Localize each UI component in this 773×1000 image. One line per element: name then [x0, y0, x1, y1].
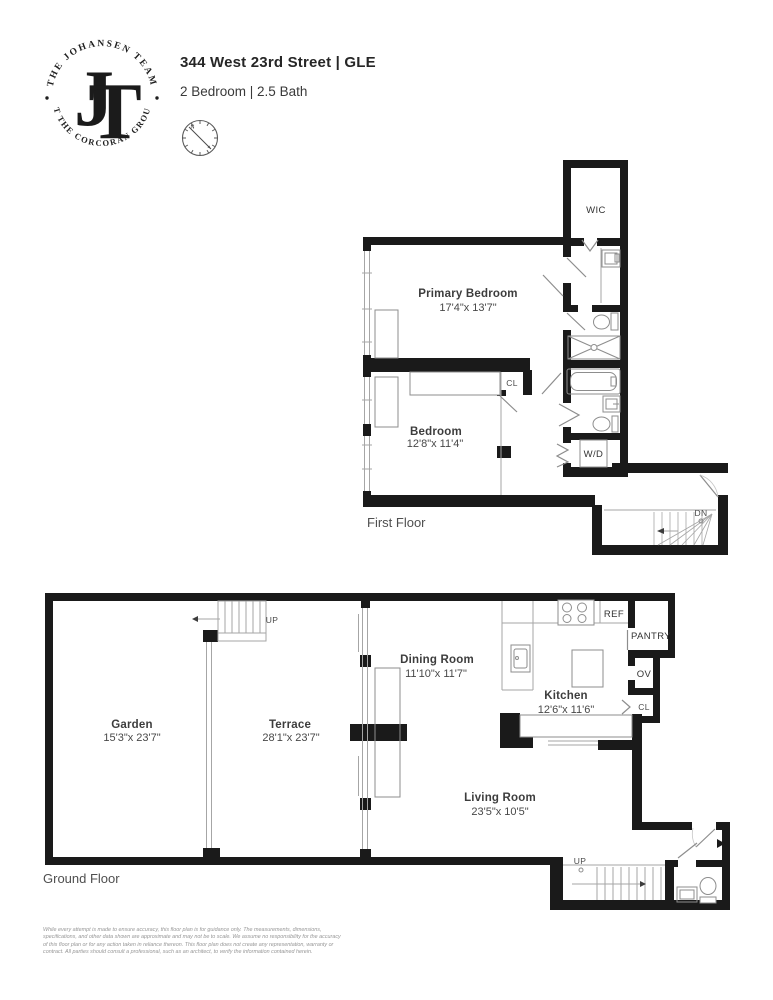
label-kitchen-closet: CL [638, 702, 649, 712]
first-floor-walls [363, 160, 728, 555]
label-dining-room-dims: 11'10"x 11'7" [405, 668, 467, 680]
label-stairs-dn: DN [695, 508, 708, 518]
label-up-living: UP [574, 856, 586, 866]
label-washer-dryer: W/D [584, 449, 604, 460]
disclaimer: While every attempt is made to ensure ac… [43, 927, 341, 957]
label-terrace-dims: 28'1"x 23'7" [262, 732, 319, 744]
label-bedroom-dims: 12'8"x 11'4" [407, 438, 464, 450]
label-oven: OV [637, 669, 652, 680]
logo-right-dot [155, 96, 158, 99]
label-ref: REF [604, 609, 624, 620]
label-living-room-name: Living Room [464, 792, 536, 804]
page-subtitle: 2 Bedroom | 2.5 Bath [180, 84, 307, 99]
company-logo: THE JOHANSEN TEAM AT THE CORCORAN GROUP … [27, 21, 177, 171]
kitchen-fixtures [375, 600, 632, 797]
ground-floor-plan: UP Garden 15'3"x 23'7" Terrace 28'1"x 23… [40, 586, 735, 916]
label-up-garden: UP [266, 615, 278, 625]
label-garden-name: Garden [111, 719, 152, 731]
compass-icon: N [178, 116, 222, 160]
logo-monogram-t: T [88, 68, 141, 156]
label-bedroom-name: Bedroom [410, 426, 462, 438]
compass-north-label: N [191, 125, 195, 131]
label-dining-room-name: Dining Room [400, 654, 474, 666]
page-title: 344 West 23rd Street | GLE [180, 54, 376, 71]
logo-left-dot [45, 96, 48, 99]
label-kitchen-dims: 12'6"x 11'6" [538, 704, 595, 716]
ground-floor-labels: UP Garden 15'3"x 23'7" Terrace 28'1"x 23… [43, 609, 671, 886]
label-wic: WIC [586, 205, 606, 216]
label-first-floor-closet: CL [506, 378, 517, 388]
label-living-room-dims: 23'5"x 10'5" [471, 806, 528, 818]
label-primary-bedroom-dims: 17'4"x 13'7" [439, 302, 496, 314]
living-stairs-up [563, 865, 665, 900]
disclaimer-line: of this floor plan or for any action tak… [43, 942, 341, 949]
floor-plan-page: THE JOHANSEN TEAM AT THE CORCORAN GROUP … [0, 0, 773, 1000]
label-garden-dims: 15'3"x 23'7" [103, 732, 160, 744]
label-primary-bedroom-name: Primary Bedroom [418, 288, 518, 300]
label-terrace-name: Terrace [269, 719, 311, 731]
disclaimer-line: While every attempt is made to ensure ac… [43, 927, 341, 934]
ground-floor-title: Ground Floor [43, 871, 120, 886]
disclaimer-line: contract. All parties should consult a p… [43, 949, 341, 956]
first-floor-title: First Floor [367, 515, 426, 530]
label-kitchen-name: Kitchen [544, 690, 588, 702]
first-floor-plan: WIC Primary Bedroom 17'4"x 13'7" CL Bedr… [355, 150, 735, 565]
disclaimer-line: specifications, and other data shown are… [43, 934, 341, 941]
label-pantry: PANTRY [631, 631, 671, 642]
